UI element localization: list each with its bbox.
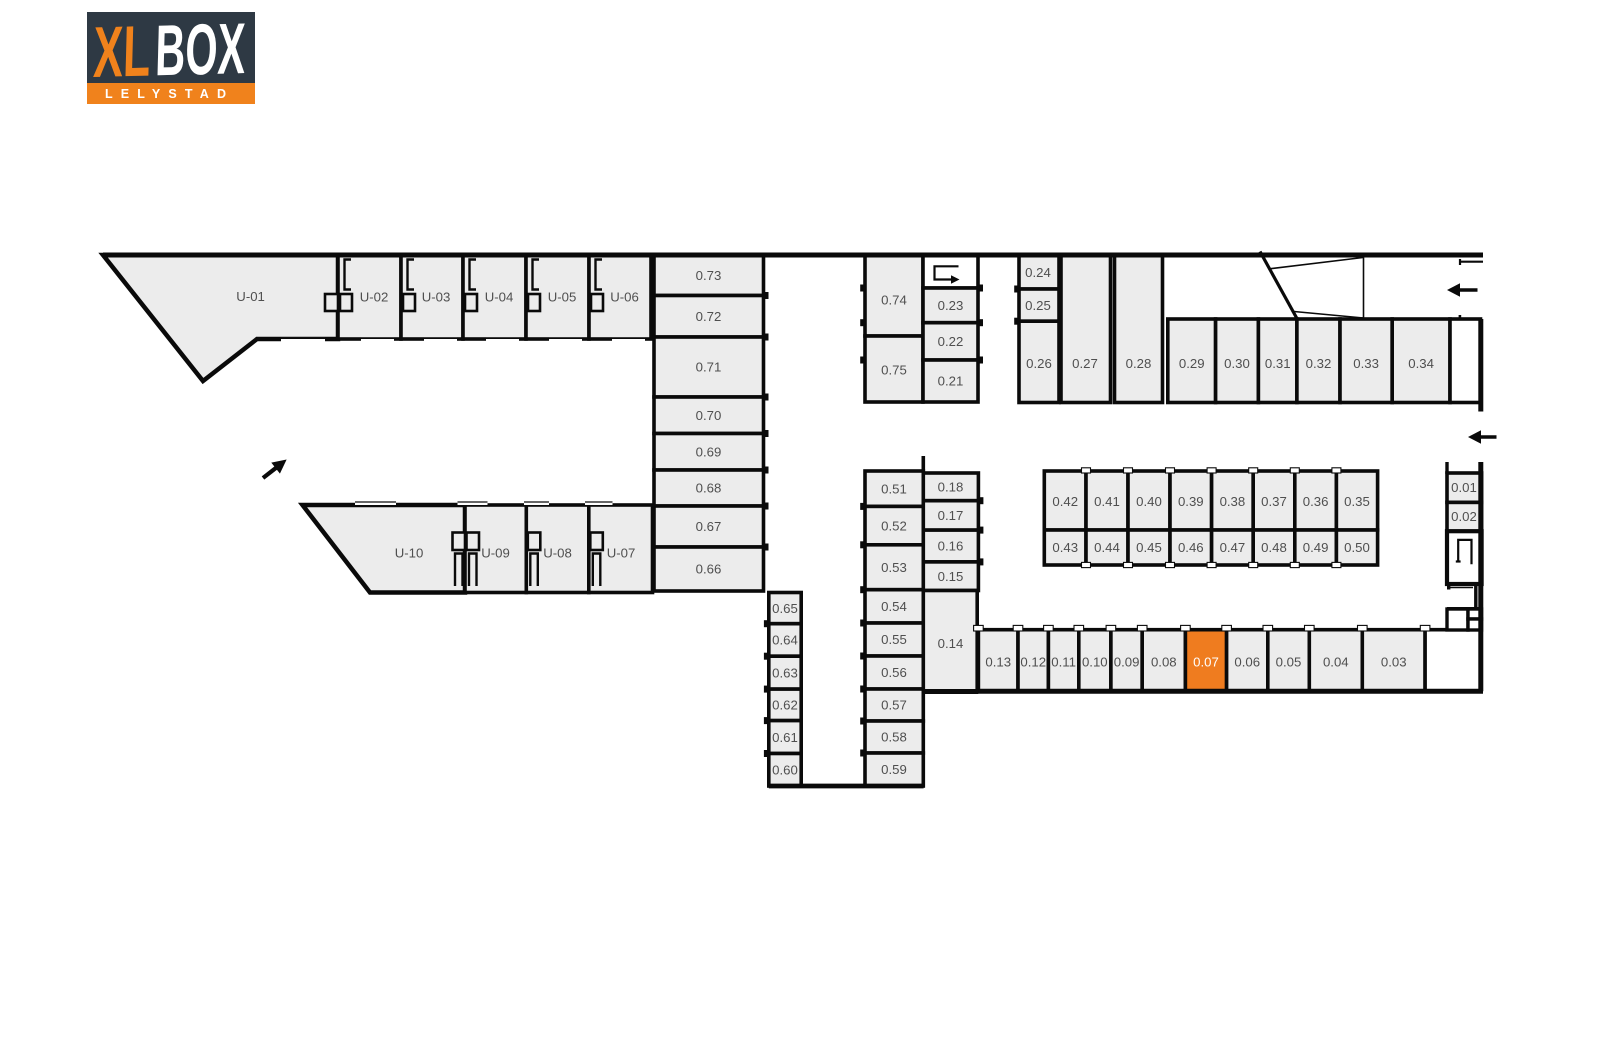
svg-text:0.29: 0.29 [1179, 356, 1205, 371]
svg-text:0.08: 0.08 [1151, 655, 1177, 670]
svg-text:0.14: 0.14 [938, 636, 964, 651]
svg-text:0.46: 0.46 [1178, 540, 1204, 555]
svg-text:0.02: 0.02 [1451, 509, 1477, 524]
svg-text:U-07: U-07 [607, 546, 636, 561]
svg-text:0.71: 0.71 [696, 360, 722, 375]
svg-text:U-05: U-05 [548, 290, 577, 305]
svg-text:XL: XL [92, 12, 151, 94]
svg-text:0.58: 0.58 [881, 730, 907, 745]
svg-text:0.66: 0.66 [696, 562, 722, 577]
svg-text:0.15: 0.15 [938, 569, 964, 584]
svg-text:U-09: U-09 [481, 546, 510, 561]
svg-text:0.67: 0.67 [696, 519, 722, 534]
svg-text:0.62: 0.62 [772, 698, 798, 713]
svg-text:0.05: 0.05 [1276, 655, 1302, 670]
svg-text:0.64: 0.64 [772, 633, 798, 648]
svg-text:0.32: 0.32 [1306, 356, 1332, 371]
svg-text:0.73: 0.73 [696, 268, 722, 283]
svg-text:0.59: 0.59 [881, 762, 907, 777]
svg-text:0.10: 0.10 [1082, 655, 1108, 670]
svg-text:0.33: 0.33 [1353, 356, 1379, 371]
svg-text:0.60: 0.60 [772, 763, 798, 778]
svg-text:0.56: 0.56 [881, 665, 907, 680]
svg-text:0.65: 0.65 [772, 601, 798, 616]
svg-text:0.45: 0.45 [1136, 540, 1162, 555]
svg-text:0.31: 0.31 [1265, 356, 1291, 371]
svg-text:0.74: 0.74 [881, 293, 907, 308]
svg-text:0.13: 0.13 [985, 655, 1011, 670]
svg-text:U-04: U-04 [485, 290, 514, 305]
svg-text:0.55: 0.55 [881, 632, 907, 647]
svg-text:0.30: 0.30 [1224, 356, 1250, 371]
svg-text:0.27: 0.27 [1072, 356, 1098, 371]
svg-text:U-03: U-03 [422, 290, 451, 305]
svg-text:0.68: 0.68 [696, 481, 722, 496]
svg-text:U-02: U-02 [360, 290, 389, 305]
svg-text:0.50: 0.50 [1344, 540, 1370, 555]
svg-text:0.36: 0.36 [1303, 494, 1329, 509]
svg-text:0.17: 0.17 [938, 508, 964, 523]
svg-text:0.41: 0.41 [1094, 494, 1120, 509]
svg-text:0.23: 0.23 [938, 298, 964, 313]
svg-text:0.07: 0.07 [1193, 655, 1219, 670]
svg-text:0.70: 0.70 [696, 408, 722, 423]
svg-text:LELYSTAD: LELYSTAD [105, 87, 233, 101]
svg-text:0.26: 0.26 [1026, 356, 1052, 371]
svg-text:0.37: 0.37 [1261, 494, 1287, 509]
svg-text:0.09: 0.09 [1114, 655, 1140, 670]
svg-text:0.28: 0.28 [1126, 356, 1152, 371]
svg-text:0.54: 0.54 [881, 599, 907, 614]
svg-text:0.49: 0.49 [1303, 540, 1329, 555]
svg-text:0.69: 0.69 [696, 444, 722, 459]
svg-text:0.72: 0.72 [696, 309, 722, 324]
svg-text:0.40: 0.40 [1136, 494, 1162, 509]
svg-text:0.63: 0.63 [772, 665, 798, 680]
svg-text:0.12: 0.12 [1020, 655, 1046, 670]
svg-text:0.04: 0.04 [1323, 655, 1349, 670]
svg-text:0.52: 0.52 [881, 518, 907, 533]
svg-text:0.53: 0.53 [881, 560, 907, 575]
svg-text:0.43: 0.43 [1052, 540, 1078, 555]
svg-text:0.44: 0.44 [1094, 540, 1120, 555]
svg-text:0.51: 0.51 [881, 481, 907, 496]
svg-text:BOX: BOX [154, 9, 246, 91]
svg-text:0.38: 0.38 [1220, 494, 1246, 509]
svg-text:U-01: U-01 [236, 289, 265, 304]
svg-text:U-06: U-06 [610, 290, 639, 305]
svg-text:0.16: 0.16 [938, 539, 964, 554]
svg-text:0.48: 0.48 [1261, 540, 1287, 555]
svg-text:0.06: 0.06 [1234, 655, 1260, 670]
svg-text:0.25: 0.25 [1025, 298, 1051, 313]
svg-text:0.47: 0.47 [1220, 540, 1246, 555]
svg-text:0.35: 0.35 [1344, 494, 1370, 509]
svg-text:0.34: 0.34 [1408, 356, 1434, 371]
svg-text:0.01: 0.01 [1451, 480, 1477, 495]
svg-text:0.42: 0.42 [1052, 494, 1078, 509]
svg-text:0.22: 0.22 [938, 334, 964, 349]
svg-text:0.61: 0.61 [772, 730, 798, 745]
svg-text:0.57: 0.57 [881, 698, 907, 713]
svg-text:0.03: 0.03 [1381, 655, 1407, 670]
svg-text:0.18: 0.18 [938, 480, 964, 495]
svg-text:0.39: 0.39 [1178, 494, 1204, 509]
svg-text:0.24: 0.24 [1025, 265, 1051, 280]
svg-text:0.21: 0.21 [938, 374, 964, 389]
svg-text:U-10: U-10 [395, 546, 424, 561]
svg-text:0.75: 0.75 [881, 363, 907, 378]
svg-text:U-08: U-08 [543, 546, 572, 561]
svg-text:0.11: 0.11 [1051, 655, 1076, 670]
